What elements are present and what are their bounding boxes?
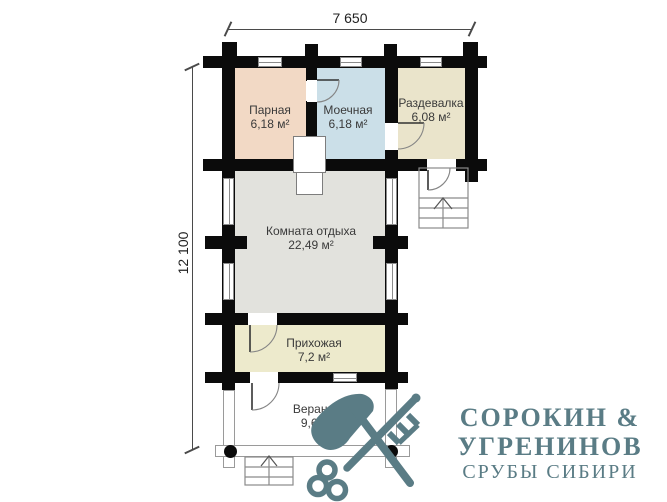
- window-left-1: [223, 178, 234, 225]
- room-area: 6,08 м²: [381, 110, 481, 124]
- label-veranda: Веранда 9,6 м²: [267, 402, 367, 430]
- window-razdevalka: [420, 57, 442, 67]
- floor-plan: Парная 6,18 м² Моечная 6,18 м² Раздевалк…: [0, 0, 667, 502]
- dimension-width-label: 7 650: [280, 10, 420, 26]
- door-gap-komnata-prihozhaya: [248, 313, 277, 325]
- dimension-line-height: [192, 67, 193, 450]
- log-stub-top-right: [463, 42, 478, 56]
- room-name: Комната отдыха: [246, 224, 376, 238]
- room-name: Веранда: [267, 402, 367, 416]
- wall-hall-top: [205, 313, 408, 325]
- room-area: 9,6 м²: [267, 416, 367, 430]
- dimension-line-width: [228, 29, 472, 30]
- log-stub-right-lower: [465, 171, 478, 182]
- window-prihozhaya: [333, 373, 357, 382]
- stove-lower: [296, 172, 323, 195]
- room-name: Раздевалка: [381, 96, 481, 110]
- log-stub-hall-left: [222, 383, 235, 390]
- logo-company-name-2: УГРЕНИНОВ: [446, 432, 654, 461]
- room-area: 7,2 м²: [264, 350, 364, 364]
- wall-hall-bottom: [205, 372, 408, 383]
- window-left-2: [223, 263, 234, 300]
- logo-tagline: СРУБЫ СИБИРИ: [446, 461, 654, 484]
- dimension-height-label: 12 100: [175, 218, 191, 288]
- stove-upper: [293, 136, 326, 173]
- label-komnata-otdyha: Комната отдыха 22,49 м²: [246, 224, 376, 252]
- log-stub-mid-left: [205, 236, 247, 249]
- label-razdevalka: Раздевалка 6,08 м²: [381, 96, 481, 124]
- log-stub-top-mid1: [305, 44, 318, 56]
- veranda-deck-edge: [215, 445, 410, 457]
- logo-company-name-1: СОРОКИН &: [446, 403, 654, 432]
- room-area: 22,49 м²: [246, 238, 376, 252]
- label-prihozhaya: Прихожая 7,2 м²: [264, 336, 364, 364]
- window-moechnaya: [340, 57, 362, 67]
- door-gap-parnaya-moechnaya: [307, 80, 317, 102]
- veranda-post-right: [385, 445, 398, 458]
- logo-text: СОРОКИН & УГРЕНИНОВ СРУБЫ СИБИРИ: [446, 403, 654, 484]
- log-stub-mid-right: [373, 236, 408, 249]
- window-right-2: [386, 263, 397, 300]
- door-gap-razdevalka-exit: [427, 159, 456, 171]
- log-stub-top-mid2: [384, 44, 397, 56]
- door-gap-prihozhaya-veranda: [250, 372, 278, 383]
- window-parnaya: [258, 57, 282, 67]
- log-stub-top-left: [222, 42, 237, 56]
- room-name: Прихожая: [264, 336, 364, 350]
- window-right-1: [386, 178, 397, 225]
- veranda-post-left: [224, 445, 237, 458]
